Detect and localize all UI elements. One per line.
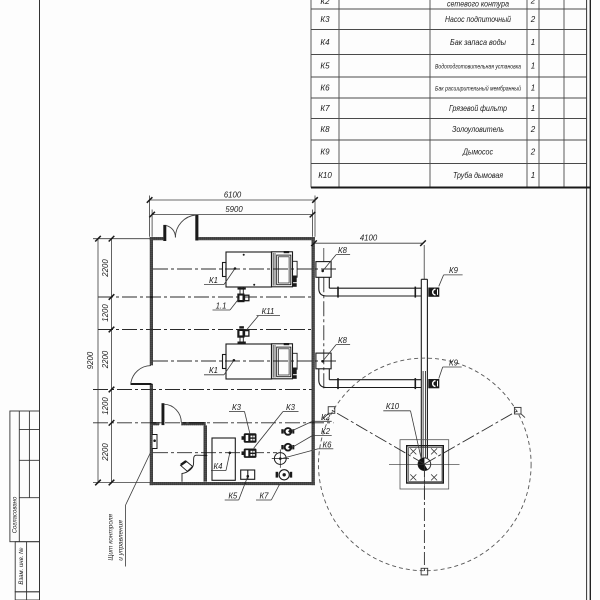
svg-text:1: 1: [531, 84, 535, 93]
svg-text:К2: К2: [320, 0, 330, 6]
svg-text:Насос подпиточный: Насос подпиточный: [445, 15, 511, 24]
svg-text:Дымосос: Дымосос: [462, 148, 493, 157]
svg-text:9200: 9200: [86, 351, 95, 369]
svg-text:К2: К2: [321, 427, 331, 436]
svg-text:К7: К7: [260, 492, 270, 501]
svg-text:Бак запаса воды: Бак запаса воды: [450, 38, 506, 47]
svg-text:1200: 1200: [101, 397, 110, 415]
svg-text:2: 2: [530, 15, 536, 24]
svg-text:Бак расширительный мембранный: Бак расширительный мембранный: [435, 85, 521, 93]
svg-text:К4: К4: [320, 38, 330, 47]
svg-text:1: 1: [531, 104, 535, 113]
svg-text:2200: 2200: [101, 350, 110, 369]
svg-text:К6: К6: [323, 440, 333, 449]
svg-text:К5: К5: [228, 492, 238, 501]
svg-text:4100: 4100: [360, 234, 378, 243]
svg-text:К6: К6: [320, 84, 330, 93]
svg-text:К8: К8: [338, 246, 348, 255]
svg-text:К8: К8: [338, 336, 348, 345]
svg-text:2200: 2200: [101, 259, 110, 278]
svg-text:К10: К10: [386, 402, 400, 411]
svg-text:К1: К1: [209, 366, 218, 375]
svg-text:Труба дымовая: Труба дымовая: [453, 171, 504, 180]
svg-text:К9: К9: [449, 358, 459, 367]
svg-text:6100: 6100: [224, 191, 242, 200]
svg-text:К2: К2: [321, 413, 331, 422]
svg-text:1200: 1200: [101, 304, 110, 322]
svg-text:Взам. инв. №: Взам. инв. №: [18, 547, 25, 585]
svg-text:К3: К3: [320, 15, 330, 24]
svg-text:К9: К9: [449, 266, 459, 275]
svg-text:2200: 2200: [101, 443, 110, 462]
svg-text:1.1: 1.1: [216, 302, 227, 311]
svg-text:К4: К4: [214, 462, 224, 471]
svg-text:1: 1: [531, 38, 535, 47]
svg-text:К10: К10: [318, 171, 332, 180]
svg-text:Щит контроля: Щит контроля: [108, 513, 115, 560]
svg-text:сетевого контура: сетевого контура: [447, 0, 509, 9]
svg-text:1: 1: [531, 171, 535, 180]
svg-text:1: 1: [531, 62, 535, 71]
svg-text:К11: К11: [262, 307, 275, 316]
svg-text:К1: К1: [209, 276, 218, 285]
svg-text:Водоподготовительная установка: Водоподготовительная установка: [435, 63, 521, 71]
svg-text:5900: 5900: [225, 205, 243, 214]
svg-text:2: 2: [530, 148, 536, 157]
svg-text:К3: К3: [286, 403, 296, 412]
svg-text:2: 2: [530, 125, 536, 134]
svg-text:К9: К9: [320, 148, 330, 157]
svg-text:К8: К8: [320, 125, 330, 134]
svg-text:2: 2: [530, 0, 536, 6]
svg-text:К5: К5: [320, 62, 330, 71]
svg-text:Золоуловитель: Золоуловитель: [452, 125, 504, 134]
svg-text:и управления: и управления: [118, 520, 125, 561]
svg-text:Грязевой фильтр: Грязевой фильтр: [449, 104, 507, 113]
svg-text:Согласовано: Согласовано: [13, 496, 19, 533]
svg-text:К3: К3: [232, 403, 242, 412]
svg-text:К7: К7: [320, 104, 330, 113]
